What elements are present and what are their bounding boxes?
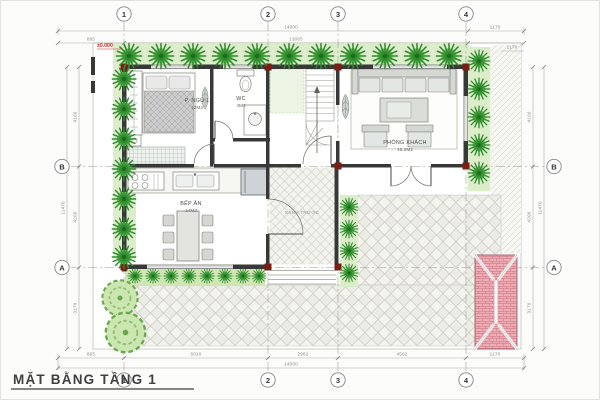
tree-icon <box>112 217 135 240</box>
dim-label: 11470 <box>538 201 543 215</box>
dim-label: 11470 <box>61 201 66 215</box>
tree-icon <box>112 157 135 180</box>
tree-icon <box>236 269 250 283</box>
dining-set <box>163 211 213 261</box>
svg-text:3: 3 <box>336 10 340 19</box>
room-area-living: 16.2M2 <box>397 147 413 153</box>
tree-icon <box>468 134 490 156</box>
tree-icon <box>180 43 205 68</box>
grid-bubble-B-left: B <box>55 159 69 173</box>
tree-icon <box>404 43 429 68</box>
plant-icon <box>342 94 349 118</box>
grid-bubble-4-bottom: 4 <box>459 373 473 387</box>
tree-icon <box>308 43 333 68</box>
grid-bubble-3-bottom: 3 <box>331 373 345 387</box>
dim-label: 4502 <box>396 352 407 357</box>
tree-icon <box>116 43 141 68</box>
dim-label: 13065 <box>289 37 303 42</box>
grid-bubble-A-right: A <box>547 260 561 274</box>
tree-icon <box>436 43 461 68</box>
dim-label: 5010 <box>190 352 201 357</box>
tree-icon <box>340 220 358 238</box>
tree-icon <box>212 43 237 68</box>
svg-text:MẶT BẰNG TẦNG 1: MẶT BẰNG TẦNG 1 <box>13 372 157 387</box>
porch-tiles <box>270 168 335 265</box>
svg-text:B: B <box>59 162 65 171</box>
tree-icon <box>340 242 358 260</box>
grid-bubble-2-bottom: 2 <box>261 373 275 387</box>
grid-bubble-2-top: 2 <box>261 7 275 21</box>
room-label-bedroom: P. NGỦ 1 <box>185 97 210 104</box>
tree-icon <box>372 43 397 68</box>
tree-icon <box>128 269 142 283</box>
dim-label: 1170 <box>507 45 518 50</box>
bush-icon <box>102 280 137 315</box>
grid-bubble-A-left: A <box>55 260 69 274</box>
tree-icon <box>112 67 135 90</box>
dim-label: 4100 <box>73 111 78 122</box>
dimensions-bottom: 865 5010 2982 4502 1170 14000 <box>56 352 526 371</box>
room-label-kitchen: BẾP ĂN <box>180 200 201 207</box>
room-area-bedroom: 12M2 <box>191 105 203 111</box>
living-room-furniture <box>351 67 457 149</box>
tree-icon <box>244 43 269 68</box>
floor-plan-drawing: 14000 1170 865 13065 1170 865 5010 2982 … <box>1 1 599 399</box>
dim-label: 1170 <box>490 352 501 357</box>
dim-label: 3170 <box>527 302 532 313</box>
tree-icon <box>146 269 160 283</box>
dim-label: 3170 <box>73 302 78 313</box>
svg-text:±0.000: ±0.000 <box>97 43 113 49</box>
tree-icon <box>340 43 365 68</box>
bush-icon <box>106 313 145 352</box>
dim-label: 1170 <box>490 25 501 30</box>
svg-text:2: 2 <box>266 10 270 19</box>
dimensions-left: 4100 4200 3170 11470 <box>61 65 82 351</box>
drawing-title: MẶT BẰNG TẦNG 1 <box>11 372 194 389</box>
tree-icon <box>468 50 490 72</box>
grid-bubble-1-top: 1 <box>117 7 131 21</box>
tree-icon <box>340 264 358 282</box>
tree-icon <box>468 106 490 128</box>
svg-text:A: A <box>551 263 557 272</box>
dimensions-right: 4100 4200 3170 11470 <box>527 65 547 351</box>
svg-text:2: 2 <box>266 376 270 385</box>
tree-icon <box>112 187 135 210</box>
room-label-porch: SẢNH TRƯỚC <box>285 209 320 215</box>
floor-plan-page: 14000 1170 865 13065 1170 865 5010 2982 … <box>0 0 600 400</box>
dim-label: 4200 <box>73 211 78 222</box>
tree-icon <box>164 269 178 283</box>
grid-bubble-B-right: B <box>547 159 561 173</box>
tree-icon <box>218 269 232 283</box>
tree-icon <box>182 269 196 283</box>
tree-icon <box>468 162 490 184</box>
room-label-wc: WC <box>236 96 246 102</box>
tree-icon <box>112 245 135 268</box>
grid-bubble-4-top: 4 <box>459 7 473 21</box>
svg-text:3: 3 <box>336 376 340 385</box>
grid-bubble-3-top: 3 <box>331 7 345 21</box>
tree-icon <box>148 43 173 68</box>
tree-icon <box>276 43 301 68</box>
svg-text:A: A <box>59 263 65 272</box>
room-area-wc: 4M2 <box>236 103 246 109</box>
understair-garden <box>270 69 304 113</box>
room-label-living: PHÒNG KHÁCH <box>383 139 426 146</box>
tree-icon <box>112 97 135 120</box>
dim-label: 865 <box>87 37 96 42</box>
svg-text:B: B <box>551 162 557 171</box>
tree-icon <box>340 198 358 216</box>
tree-icon <box>468 78 490 100</box>
dim-label: 14000 <box>284 25 298 30</box>
tree-icon <box>200 269 214 283</box>
tree-icon <box>112 127 135 150</box>
dim-label: 4100 <box>527 111 532 122</box>
dim-label: 14000 <box>284 362 298 367</box>
dim-label: 2982 <box>297 352 308 357</box>
dim-label: 4200 <box>527 211 532 222</box>
room-area-kitchen: 14M2 <box>185 208 197 214</box>
tree-icon <box>252 269 266 283</box>
gate-roof <box>475 255 517 349</box>
dim-label: 865 <box>87 352 96 357</box>
